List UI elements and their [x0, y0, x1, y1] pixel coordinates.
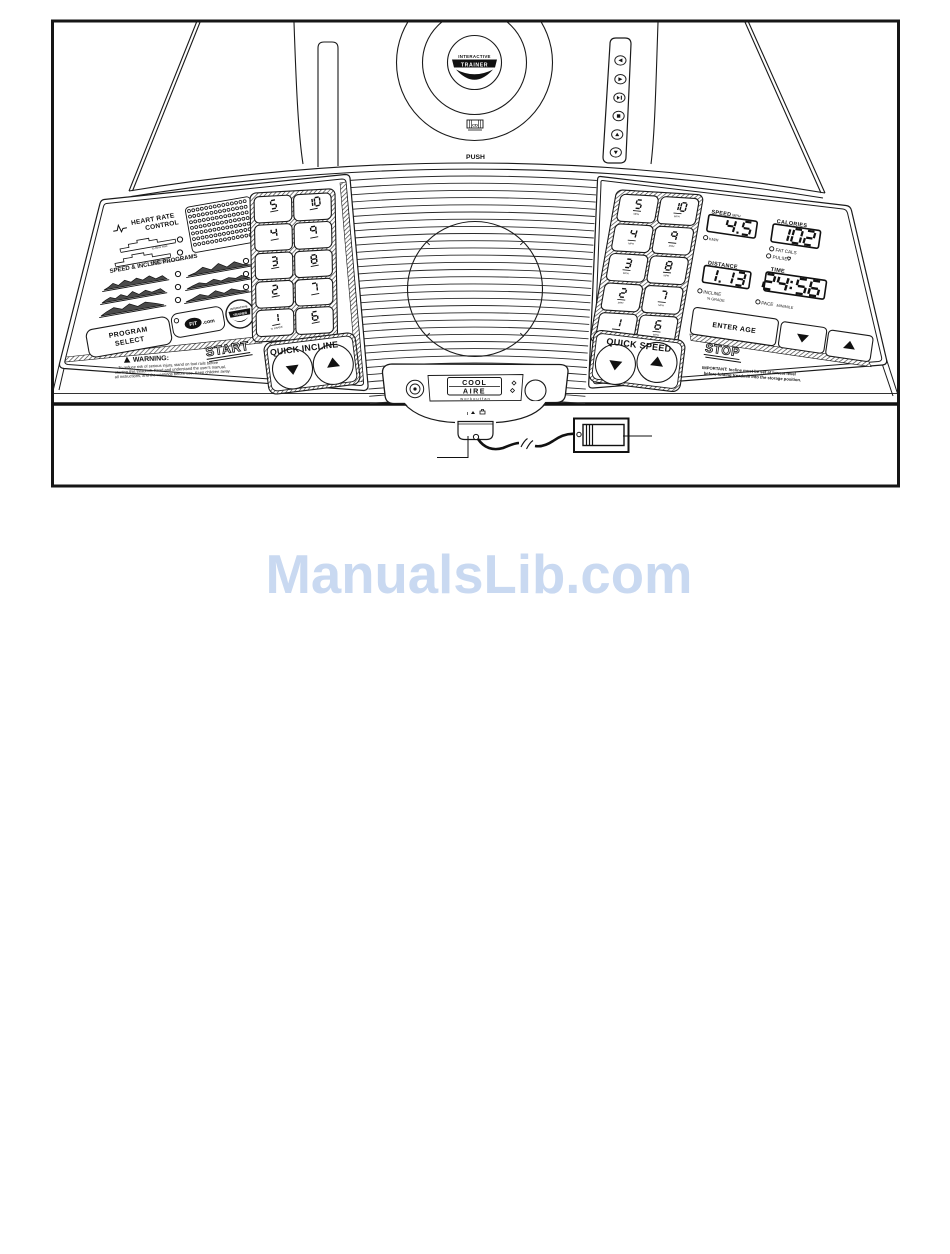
svg-text:PUSH: PUSH — [466, 154, 485, 161]
svg-text:MPH: MPH — [668, 245, 674, 249]
svg-text:MPH: MPH — [623, 272, 629, 276]
svg-text:MPH: MPH — [674, 215, 680, 219]
svg-text:ManualsLib.com: ManualsLib.com — [266, 544, 693, 605]
svg-text:MPH: MPH — [658, 304, 664, 308]
svg-text:CD: CD — [472, 123, 478, 128]
svg-text:w o r k o u t f a n: w o r k o u t f a n — [460, 396, 490, 401]
svg-text:TRAINER: TRAINER — [461, 62, 488, 68]
svg-text:MPH: MPH — [628, 242, 634, 246]
svg-text:I: I — [467, 411, 468, 416]
svg-text:MPH: MPH — [617, 301, 623, 305]
svg-text:AIRE: AIRE — [463, 387, 486, 396]
svg-text:MPH: MPH — [633, 213, 639, 217]
svg-text:INTERACTIVE: INTERACTIVE — [458, 54, 491, 59]
svg-text:MPH: MPH — [663, 274, 669, 278]
